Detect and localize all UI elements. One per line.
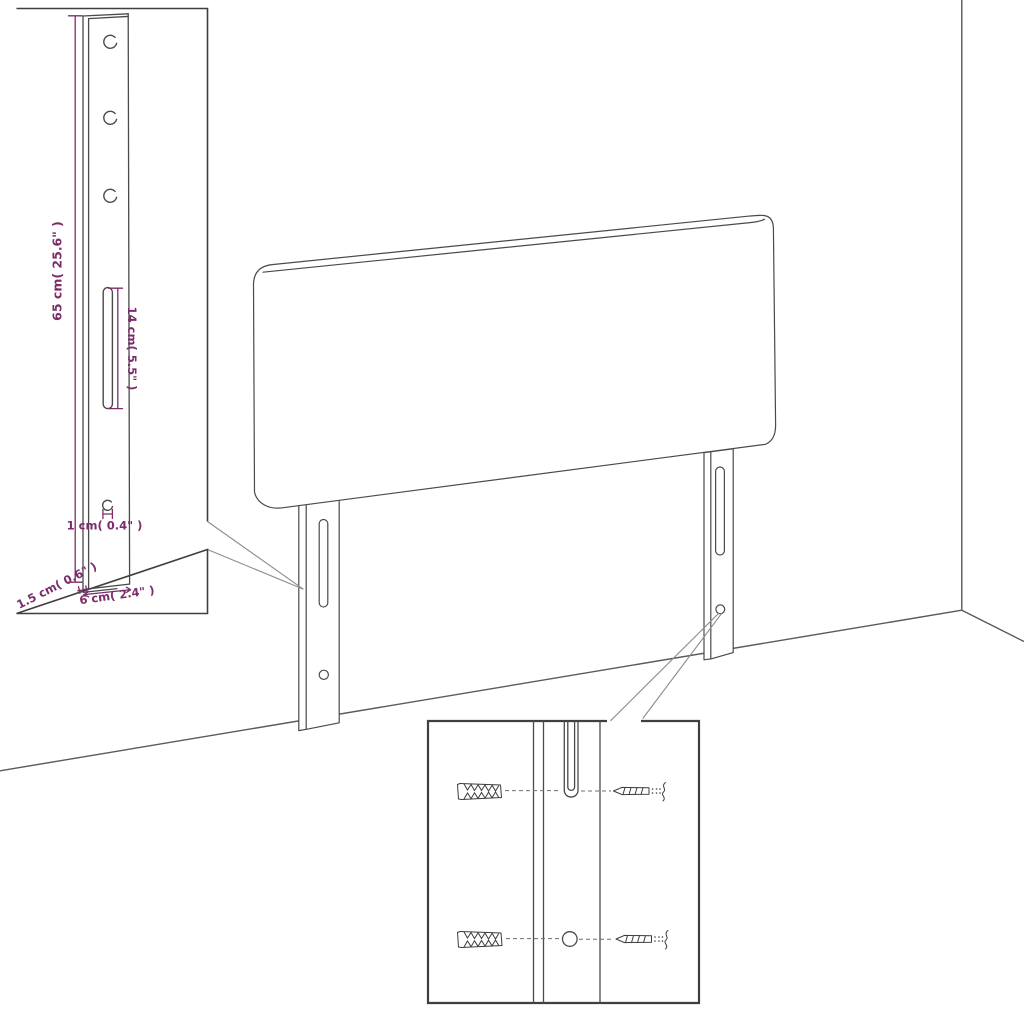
dimension-14cm-label: 14 cm( 5.5" ) — [125, 307, 139, 391]
left-leg — [299, 492, 339, 731]
headboard-panel — [254, 215, 776, 508]
diagram-canvas: 65 cm( 25.6" ) 14 cm( 5.5" ) 1 cm( 0.4" … — [0, 0, 1024, 1024]
callout-wedge-left — [208, 522, 304, 590]
dimension-1cm-label: 1 cm( 0.4" ) — [67, 519, 143, 533]
hardware-detail-inset — [428, 721, 699, 1003]
right-leg — [704, 449, 733, 660]
hardware-inset-border — [428, 721, 699, 1003]
headboard-dimension-diagram: 65 cm( 25.6" ) 14 cm( 5.5" ) 1 cm( 0.4" … — [0, 0, 1024, 1024]
leg-detail-inset: 65 cm( 25.6" ) 14 cm( 5.5" ) 1 cm( 0.4" … — [14, 9, 207, 614]
dimension-65cm-label: 65 cm( 25.6" ) — [50, 221, 65, 321]
headboard-panel-outline — [254, 215, 776, 508]
floor-line-right — [962, 610, 1024, 641]
